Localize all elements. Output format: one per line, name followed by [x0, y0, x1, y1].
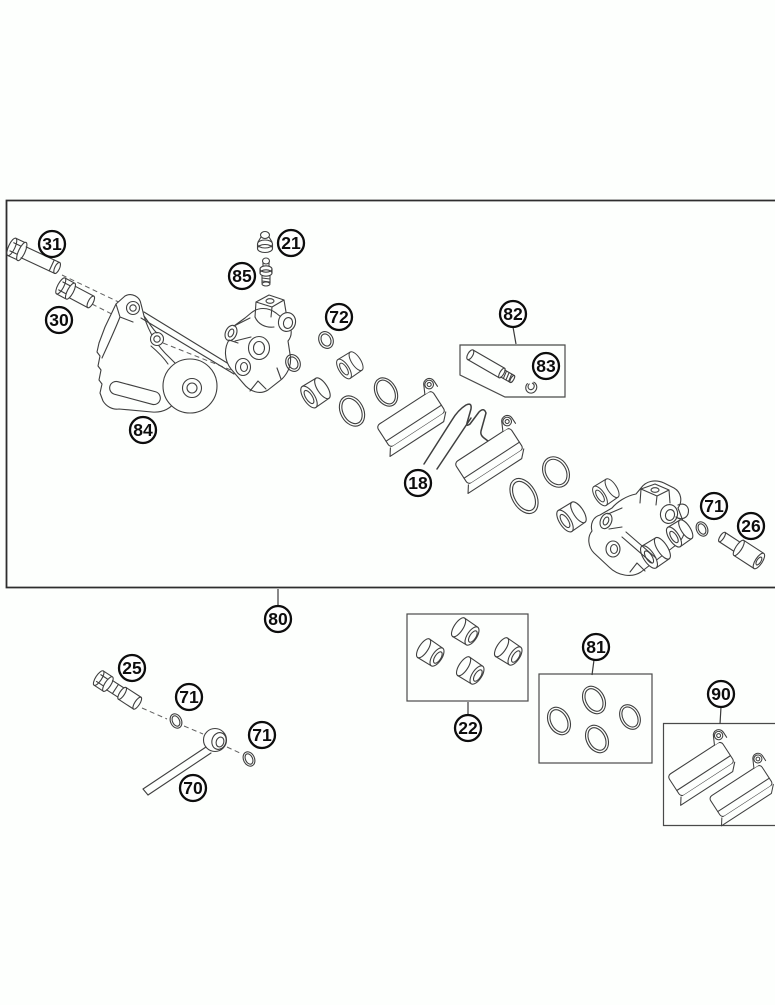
svg-text:72: 72 [329, 307, 349, 327]
svg-text:18: 18 [408, 473, 428, 493]
callout-71: 71 [249, 722, 275, 748]
callout-85: 85 [229, 263, 255, 289]
svg-text:81: 81 [586, 637, 606, 657]
callout-81: 81 [583, 634, 609, 660]
callout-71: 71 [701, 493, 727, 519]
callout-90: 90 [708, 681, 734, 707]
svg-text:71: 71 [252, 725, 272, 745]
svg-text:70: 70 [183, 778, 203, 798]
part-bleeder-screw-85 [260, 258, 272, 286]
svg-text:21: 21 [281, 233, 301, 253]
svg-text:26: 26 [741, 516, 761, 536]
part-o-ring-left-large [370, 374, 403, 410]
callout-84: 84 [130, 417, 156, 443]
callout-83: 83 [533, 353, 559, 379]
hose-axis-dashes [142, 708, 242, 754]
part-piston-left-b [334, 349, 366, 381]
leader-line [513, 327, 516, 344]
svg-text:25: 25 [122, 658, 142, 678]
callout-72: 72 [326, 304, 352, 330]
part-piston-left-a [298, 375, 334, 410]
part-collar-bushing-30 [54, 277, 97, 311]
leader-line [720, 707, 721, 724]
callout-70: 70 [180, 775, 206, 801]
svg-text:71: 71 [704, 496, 724, 516]
parts-diagram-page: 31302185728283841871268025717170228190 [0, 0, 775, 1005]
part-caliper-support-bracket-84 [97, 295, 237, 413]
part-piston-right-a [554, 499, 590, 534]
part-o-ring-72 [316, 329, 336, 351]
svg-text:30: 30 [49, 310, 69, 330]
svg-text:90: 90 [711, 684, 731, 704]
kit-box-22 [407, 614, 528, 701]
part-sealing-ring-71-b [241, 750, 257, 768]
kit-box-81 [539, 674, 652, 763]
callout-25: 25 [119, 655, 145, 681]
callout-31: 31 [39, 231, 65, 257]
part-brake-pad-inner [366, 376, 456, 456]
part-piston-seal-right [537, 452, 575, 492]
svg-text:82: 82 [503, 304, 523, 324]
svg-text:80: 80 [268, 609, 288, 629]
svg-text:71: 71 [179, 687, 199, 707]
parts-diagram-canvas: 31302185728283841871268025717170228190 [0, 0, 775, 1005]
callout-30: 30 [46, 307, 72, 333]
svg-text:85: 85 [232, 266, 252, 286]
part-sealing-ring-71-a [168, 712, 184, 730]
svg-text:83: 83 [536, 356, 556, 376]
part-caliper-inner-half [223, 295, 298, 392]
part-piston-seal-left [334, 391, 369, 430]
svg-text:31: 31 [42, 234, 62, 254]
callout-22: 22 [455, 715, 481, 741]
svg-text:22: 22 [458, 718, 478, 738]
part-o-ring-right-large [504, 474, 544, 519]
callout-26: 26 [738, 513, 764, 539]
kit-box-90 [657, 724, 775, 826]
callout-71: 71 [176, 684, 202, 710]
svg-text:84: 84 [133, 420, 153, 440]
callout-18: 18 [405, 470, 431, 496]
callout-80: 80 [265, 606, 291, 632]
callout-82: 82 [500, 301, 526, 327]
leader-line [592, 660, 594, 675]
callout-21: 21 [278, 230, 304, 256]
part-bleeder-cap-21 [258, 232, 273, 253]
part-sealing-ring-71-right [694, 520, 710, 538]
